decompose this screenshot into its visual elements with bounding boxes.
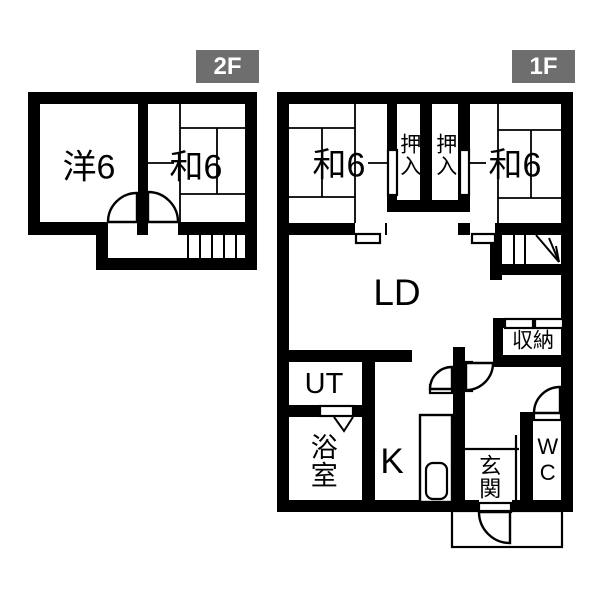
floorplan-page: 2F 1F 洋6 和6 和6 押入 押入 和6 LD 収納 UT 浴室 K 玄関…	[0, 0, 600, 600]
room-label-utility: UT	[305, 370, 344, 400]
kitchen-sink	[426, 463, 447, 499]
bath-door	[320, 406, 353, 416]
storage-door	[535, 319, 563, 328]
room-label-storage: 収納	[512, 330, 554, 351]
closet-door	[460, 150, 469, 195]
room-label-closet-right: 押入	[434, 133, 455, 177]
door-arc	[466, 363, 493, 390]
sliding-door	[472, 234, 495, 243]
storage-door	[505, 319, 533, 328]
room-label-living-dining: LD	[373, 274, 420, 312]
wall	[96, 258, 257, 270]
wall	[245, 92, 257, 270]
room-label-western-6: 洋6	[63, 151, 116, 186]
wall	[387, 200, 470, 212]
door-opening	[148, 222, 178, 235]
wall-partition	[138, 104, 148, 222]
folding-door-mark	[334, 417, 353, 431]
wall	[277, 92, 289, 512]
door-arc-wc	[534, 387, 560, 413]
door-arc	[108, 193, 137, 222]
wall	[28, 92, 257, 104]
floor-2f-badge: 2F	[196, 50, 259, 83]
room-label-closet-left: 押入	[398, 133, 419, 177]
room-label-kitchen: K	[380, 444, 403, 480]
room-label-bath: 浴室	[307, 433, 335, 489]
room-label-japanese-6-2f: 和6	[170, 151, 223, 186]
floorplan-canvas	[0, 0, 600, 600]
wall	[420, 104, 432, 212]
door-arc	[148, 192, 178, 222]
wall	[28, 92, 40, 235]
door-opening	[108, 222, 137, 235]
room-label-toilet: WC	[536, 434, 558, 486]
stairs-2f	[188, 235, 236, 258]
wall	[28, 222, 257, 235]
door-arc	[430, 367, 452, 389]
wall	[362, 350, 375, 502]
room-label-entrance: 玄関	[477, 454, 499, 500]
closet-door	[388, 150, 397, 195]
wall	[493, 355, 573, 367]
wall	[277, 92, 573, 104]
floor-1f-badge: 1F	[512, 50, 575, 83]
door-arc-entrance	[479, 512, 510, 543]
wall	[502, 264, 573, 275]
sliding-door	[356, 234, 380, 243]
wall	[520, 412, 533, 502]
room-label-japanese-6-left: 和6	[313, 149, 366, 184]
room-label-japanese-6-right: 和6	[489, 149, 542, 184]
wall	[561, 92, 573, 512]
stairs-1f	[514, 235, 559, 264]
wall	[277, 350, 412, 362]
